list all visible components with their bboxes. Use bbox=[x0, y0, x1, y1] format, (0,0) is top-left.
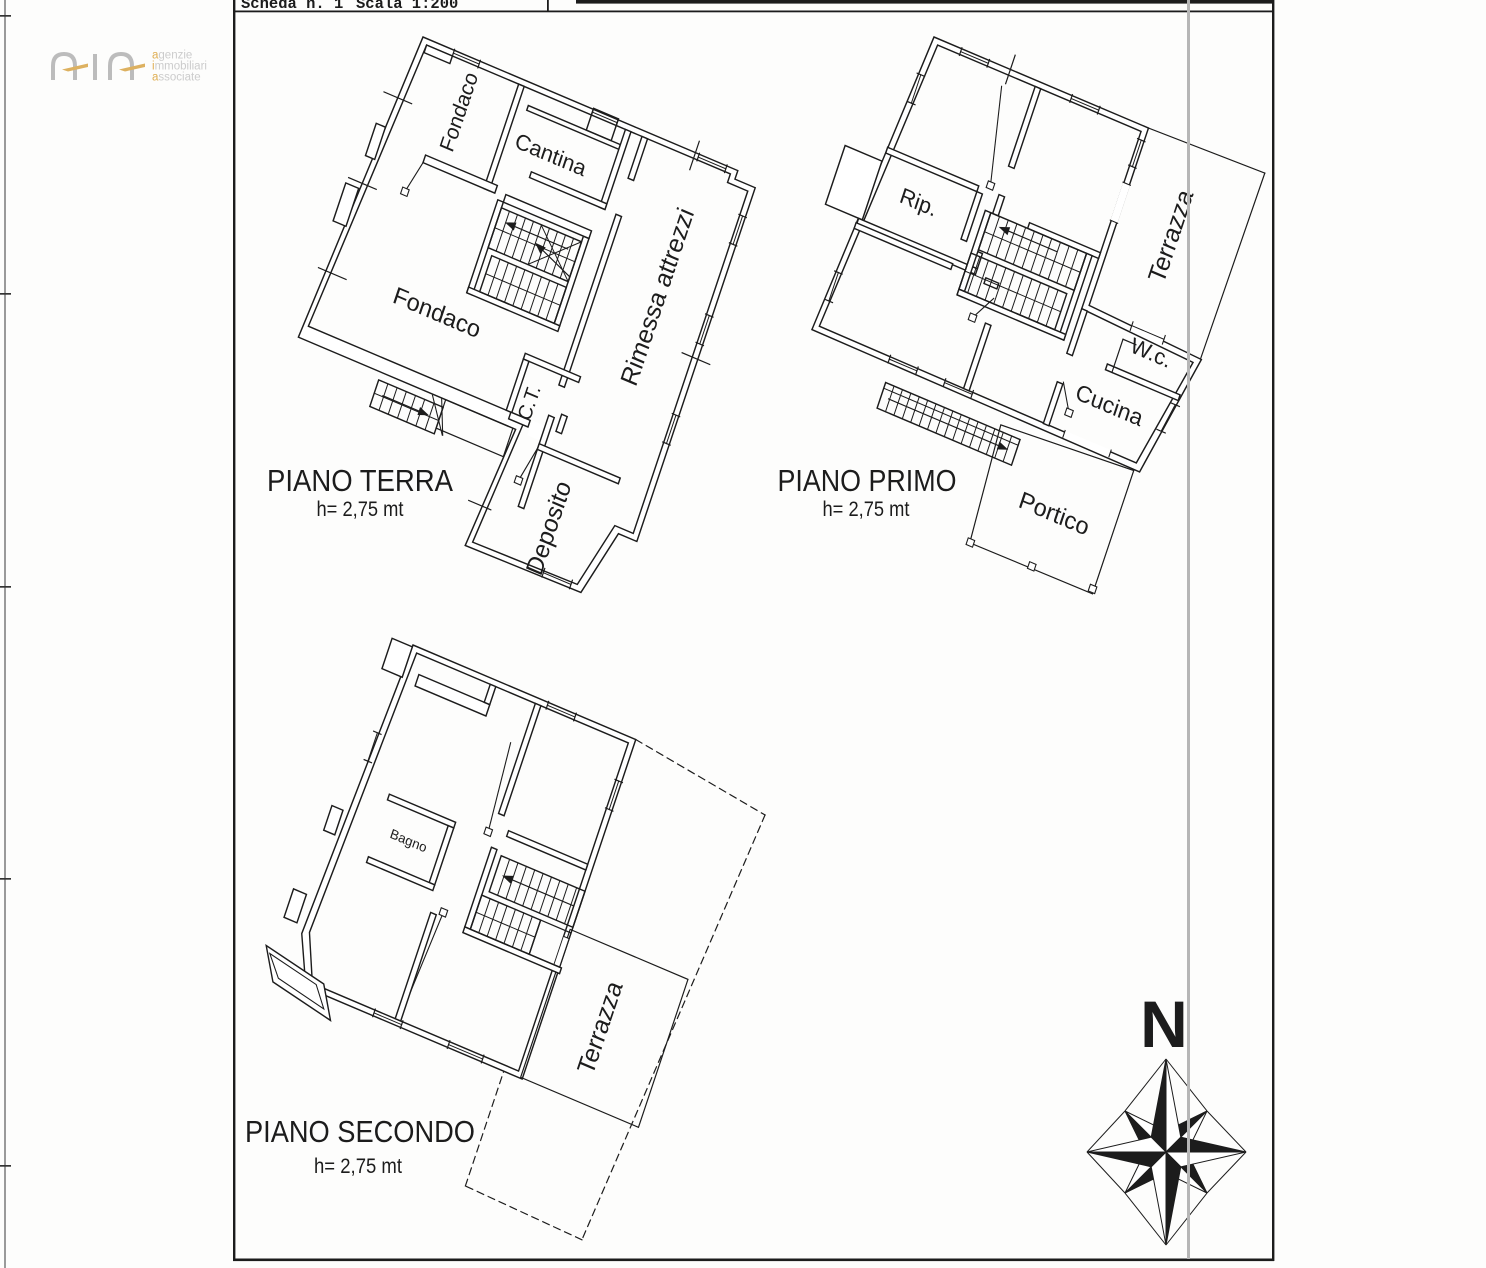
svg-text:h= 2,75 mt: h= 2,75 mt bbox=[314, 1154, 402, 1178]
svg-text:Scheda n. 1: Scheda n. 1 bbox=[241, 0, 343, 13]
svg-text:h= 2,75 mt: h= 2,75 mt bbox=[317, 497, 404, 521]
svg-text:PIANO TERRA: PIANO TERRA bbox=[267, 464, 454, 498]
svg-text:PIANO PRIMO: PIANO PRIMO bbox=[778, 464, 957, 498]
svg-text:PIANO SECONDO: PIANO SECONDO bbox=[245, 1115, 475, 1149]
svg-text:associate: associate bbox=[152, 72, 201, 84]
svg-text:h= 2,75 mt: h= 2,75 mt bbox=[823, 497, 910, 521]
svg-text:Scala 1:200: Scala 1:200 bbox=[356, 0, 458, 13]
svg-text:N: N bbox=[1140, 987, 1188, 1061]
